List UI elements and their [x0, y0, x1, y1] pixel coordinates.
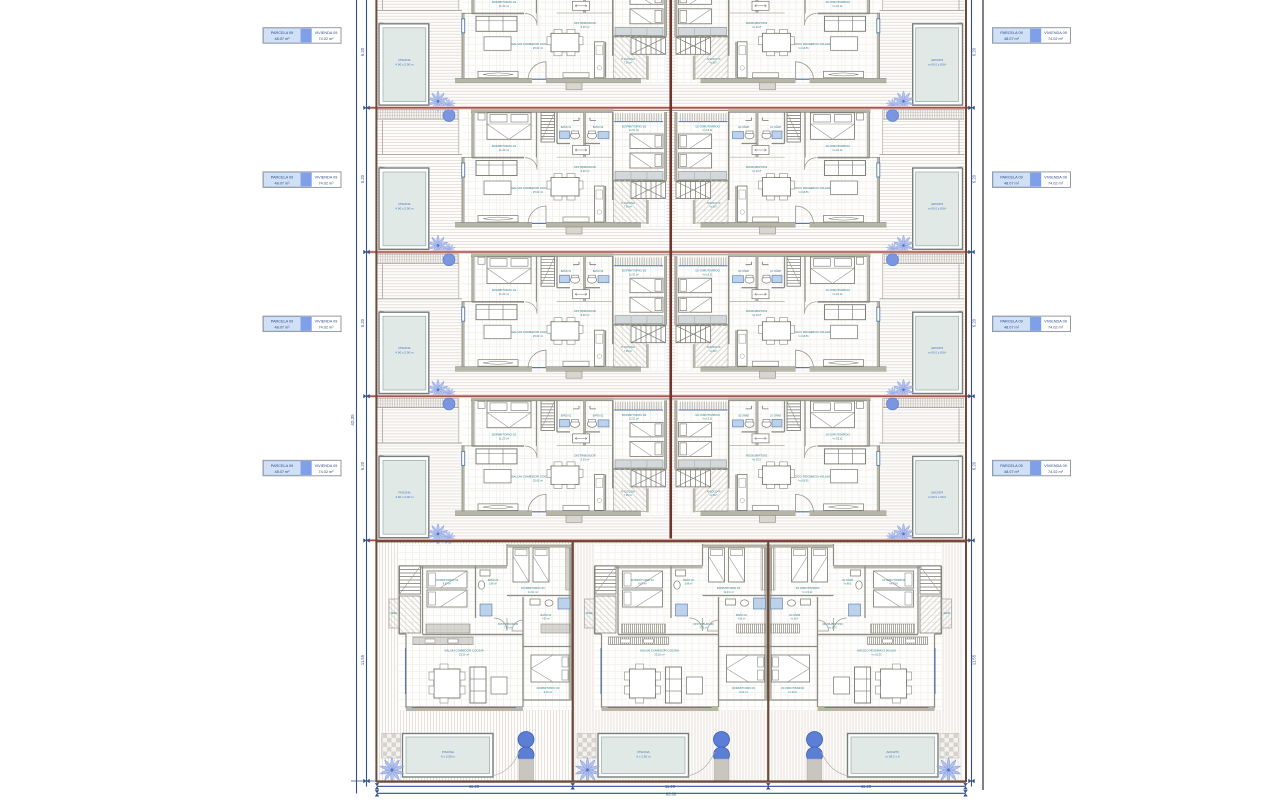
svg-text:63.00: 63.00 [666, 792, 677, 797]
svg-text:DISTRIBUIDOR: DISTRIBUIDOR [574, 165, 596, 169]
svg-text:6.20: 6.20 [972, 461, 977, 470]
svg-text:3.88 m²: 3.88 m² [489, 582, 497, 585]
svg-text:11.20: 11.20 [665, 784, 676, 789]
svg-text:6.20: 6.20 [972, 47, 977, 56]
svg-text:6.20: 6.20 [360, 318, 365, 327]
svg-text:42.35: 42.35 [350, 414, 355, 426]
svg-text:7.05 m²: 7.05 m² [624, 206, 632, 209]
svg-text:TEND.: TEND. [390, 612, 398, 615]
svg-text:11.20: 11.20 [469, 784, 480, 789]
svg-text:4.50 m²: 4.50 m² [542, 618, 550, 621]
svg-text:11.51 m²: 11.51 m² [629, 128, 639, 132]
svg-text:4.00 x 2.00 m: 4.00 x 2.00 m [395, 207, 414, 211]
svg-text:9.21 m²: 9.21 m² [544, 691, 553, 694]
svg-text:DORMITORIO 02: DORMITORIO 02 [622, 125, 647, 129]
svg-text:5.20 m²: 5.20 m² [581, 169, 590, 173]
svg-text:DORMITORIO 02: DORMITORIO 02 [436, 578, 459, 582]
svg-text:PISCINA: PISCINA [442, 750, 454, 754]
svg-text:11.55: 11.55 [972, 654, 977, 665]
svg-text:DISTRIBUIDOR: DISTRIBUIDOR [498, 622, 518, 626]
svg-text:25.62 m²: 25.62 m² [533, 190, 543, 194]
svg-text:DORMITORIO 01: DORMITORIO 01 [492, 144, 517, 148]
svg-text:6.20: 6.20 [972, 174, 977, 183]
svg-text:DORMITORIO 01: DORMITORIO 01 [521, 586, 545, 590]
svg-text:BAÑO 02: BAÑO 02 [488, 579, 499, 582]
svg-text:23.20 m²: 23.20 m² [459, 652, 469, 656]
svg-text:6 x 2.50 m: 6 x 2.50 m [441, 755, 456, 759]
svg-text:7.15 m²: 7.15 m² [504, 627, 512, 630]
svg-text:BAÑO 02: BAÑO 02 [593, 126, 604, 129]
svg-text:PISCINA: PISCINA [398, 202, 410, 206]
svg-text:6.20: 6.20 [360, 47, 365, 56]
svg-text:6.20: 6.20 [360, 461, 365, 470]
svg-text:BAÑO 01: BAÑO 01 [561, 126, 572, 129]
svg-text:6.20: 6.20 [360, 174, 365, 183]
svg-text:6.20: 6.20 [972, 318, 977, 327]
svg-text:11.20: 11.20 [861, 784, 872, 789]
svg-text:11.55: 11.55 [360, 654, 365, 665]
svg-text:DORMITORIO 03: DORMITORIO 03 [537, 686, 560, 690]
svg-text:11.31 m²: 11.31 m² [528, 590, 538, 594]
svg-text:8.67 m²: 8.67 m² [443, 583, 452, 586]
svg-text:P-COCINA: P-COCINA [621, 201, 635, 205]
svg-text:11.23 m²: 11.23 m² [499, 148, 510, 152]
svg-text:SALON COMEDOR COCINA: SALON COMEDOR COCINA [444, 649, 483, 653]
